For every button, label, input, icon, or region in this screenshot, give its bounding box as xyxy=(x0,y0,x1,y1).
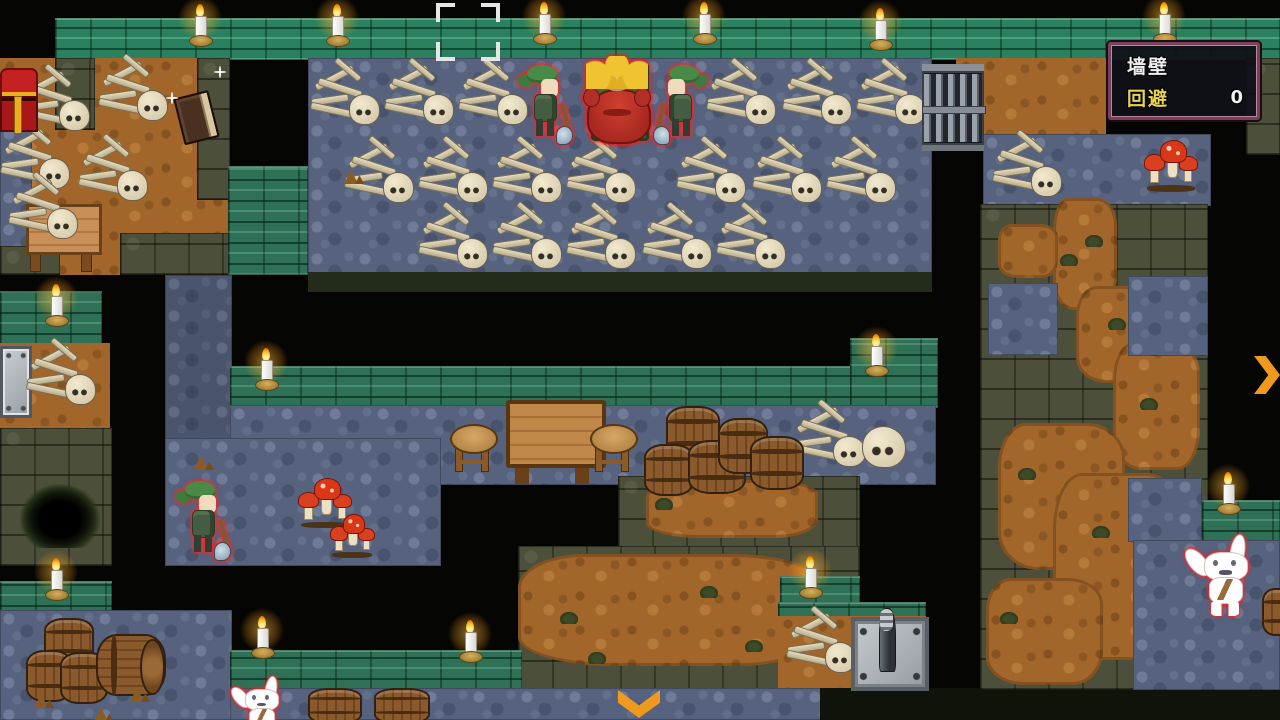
candle xyxy=(798,556,822,602)
wall-green-brick xyxy=(55,18,1280,60)
stats-panel: 墙壁 回避 0 xyxy=(1108,42,1260,120)
skeleton-bones xyxy=(676,142,750,204)
skull xyxy=(862,426,906,468)
rabbit-character[interactable] xyxy=(1188,536,1262,618)
floor-dirt-patch xyxy=(986,578,1103,685)
grass-tuft xyxy=(560,612,578,624)
sparkle xyxy=(166,92,178,104)
skeleton-bones xyxy=(418,142,492,204)
skeleton-bones xyxy=(786,612,860,674)
candle xyxy=(1216,472,1240,518)
candle xyxy=(188,4,212,50)
candle xyxy=(254,348,278,394)
skeleton-bones xyxy=(566,208,640,270)
wall-stone xyxy=(120,233,230,275)
stat-evade-label: 回避 xyxy=(1127,84,1169,111)
skeleton-bones xyxy=(418,208,492,270)
grass-tuft xyxy=(745,640,763,652)
skeleton-bones xyxy=(752,142,826,204)
metal-gate[interactable] xyxy=(922,64,984,151)
barrel xyxy=(374,688,430,720)
skeleton-bones xyxy=(8,178,82,240)
soldier-enemy[interactable] xyxy=(656,64,704,142)
debris xyxy=(194,454,214,470)
soldier-enemy[interactable] xyxy=(522,64,570,142)
floor-dirt-patch xyxy=(518,554,820,666)
floor-cobblestone xyxy=(1128,478,1202,542)
grass-tuft xyxy=(588,652,606,664)
stat-evade-value: 0 xyxy=(1230,87,1243,108)
skeleton-bones xyxy=(566,142,640,204)
candle xyxy=(325,4,349,50)
skeleton-bones xyxy=(78,140,152,202)
mushroom-cluster[interactable] xyxy=(1144,140,1198,192)
stool xyxy=(450,422,494,472)
candle xyxy=(44,284,68,330)
grass-tuft xyxy=(1060,254,1078,266)
floor-cobblestone xyxy=(165,275,232,447)
skeleton-bones xyxy=(706,64,780,126)
selection-bracket xyxy=(436,3,500,61)
treasure-chest[interactable] xyxy=(0,68,34,132)
candle xyxy=(868,8,892,54)
skeleton-bones xyxy=(98,60,172,122)
grass-tuft xyxy=(655,498,673,510)
stat-wall-label: 墙壁 xyxy=(1127,52,1169,79)
skeleton-bones xyxy=(716,208,790,270)
barrel xyxy=(308,688,362,720)
grass-tuft xyxy=(1140,398,1158,410)
barrel xyxy=(750,436,804,490)
game-viewport: 墙壁 回避 0 xyxy=(0,0,1280,720)
candle xyxy=(44,558,68,604)
floor-dirt-patch xyxy=(998,224,1058,278)
stool xyxy=(590,422,634,472)
soldier-enemy[interactable] xyxy=(180,480,228,558)
debris xyxy=(344,168,364,184)
candle xyxy=(692,2,716,48)
skeleton-bones xyxy=(26,344,100,406)
skeleton-bones xyxy=(992,136,1066,198)
floor-dirt xyxy=(980,58,1106,138)
skeleton-bones xyxy=(856,64,930,126)
mushroom-cluster[interactable] xyxy=(330,514,374,558)
candle xyxy=(250,616,274,662)
grass-tuft xyxy=(1108,318,1126,330)
wall-dark xyxy=(308,272,932,292)
barrel xyxy=(644,444,694,496)
skeleton-bones xyxy=(642,208,716,270)
grass-tuft xyxy=(1018,468,1036,480)
candle xyxy=(864,334,888,380)
pit-hole[interactable] xyxy=(20,484,100,548)
grass-tuft xyxy=(700,586,718,598)
grass-tuft xyxy=(1092,526,1110,538)
lever-device[interactable] xyxy=(851,608,921,686)
skeleton-bones xyxy=(782,64,856,126)
skeleton-bones xyxy=(492,208,566,270)
debris xyxy=(34,692,54,708)
skeleton-bones xyxy=(310,64,384,126)
grass-tuft xyxy=(1085,235,1103,247)
grass-tuft xyxy=(1000,612,1018,624)
candle xyxy=(532,2,556,48)
barrel xyxy=(1262,588,1280,636)
rabbit-character[interactable] xyxy=(233,678,289,720)
skeleton-bones xyxy=(492,142,566,204)
skeleton-bones xyxy=(384,64,458,126)
wall-dark xyxy=(820,688,1280,720)
debris xyxy=(94,706,114,720)
floor-cobblestone xyxy=(1128,276,1208,356)
table xyxy=(506,400,598,484)
wall-green-brick xyxy=(228,166,308,275)
sparkle xyxy=(214,66,226,78)
debris xyxy=(130,686,150,702)
boss-enemy[interactable] xyxy=(582,56,652,144)
floor-cobblestone xyxy=(988,283,1058,355)
arrow-right-indicator[interactable] xyxy=(1254,356,1280,394)
skeleton-bones xyxy=(826,142,900,204)
candle xyxy=(458,620,482,666)
